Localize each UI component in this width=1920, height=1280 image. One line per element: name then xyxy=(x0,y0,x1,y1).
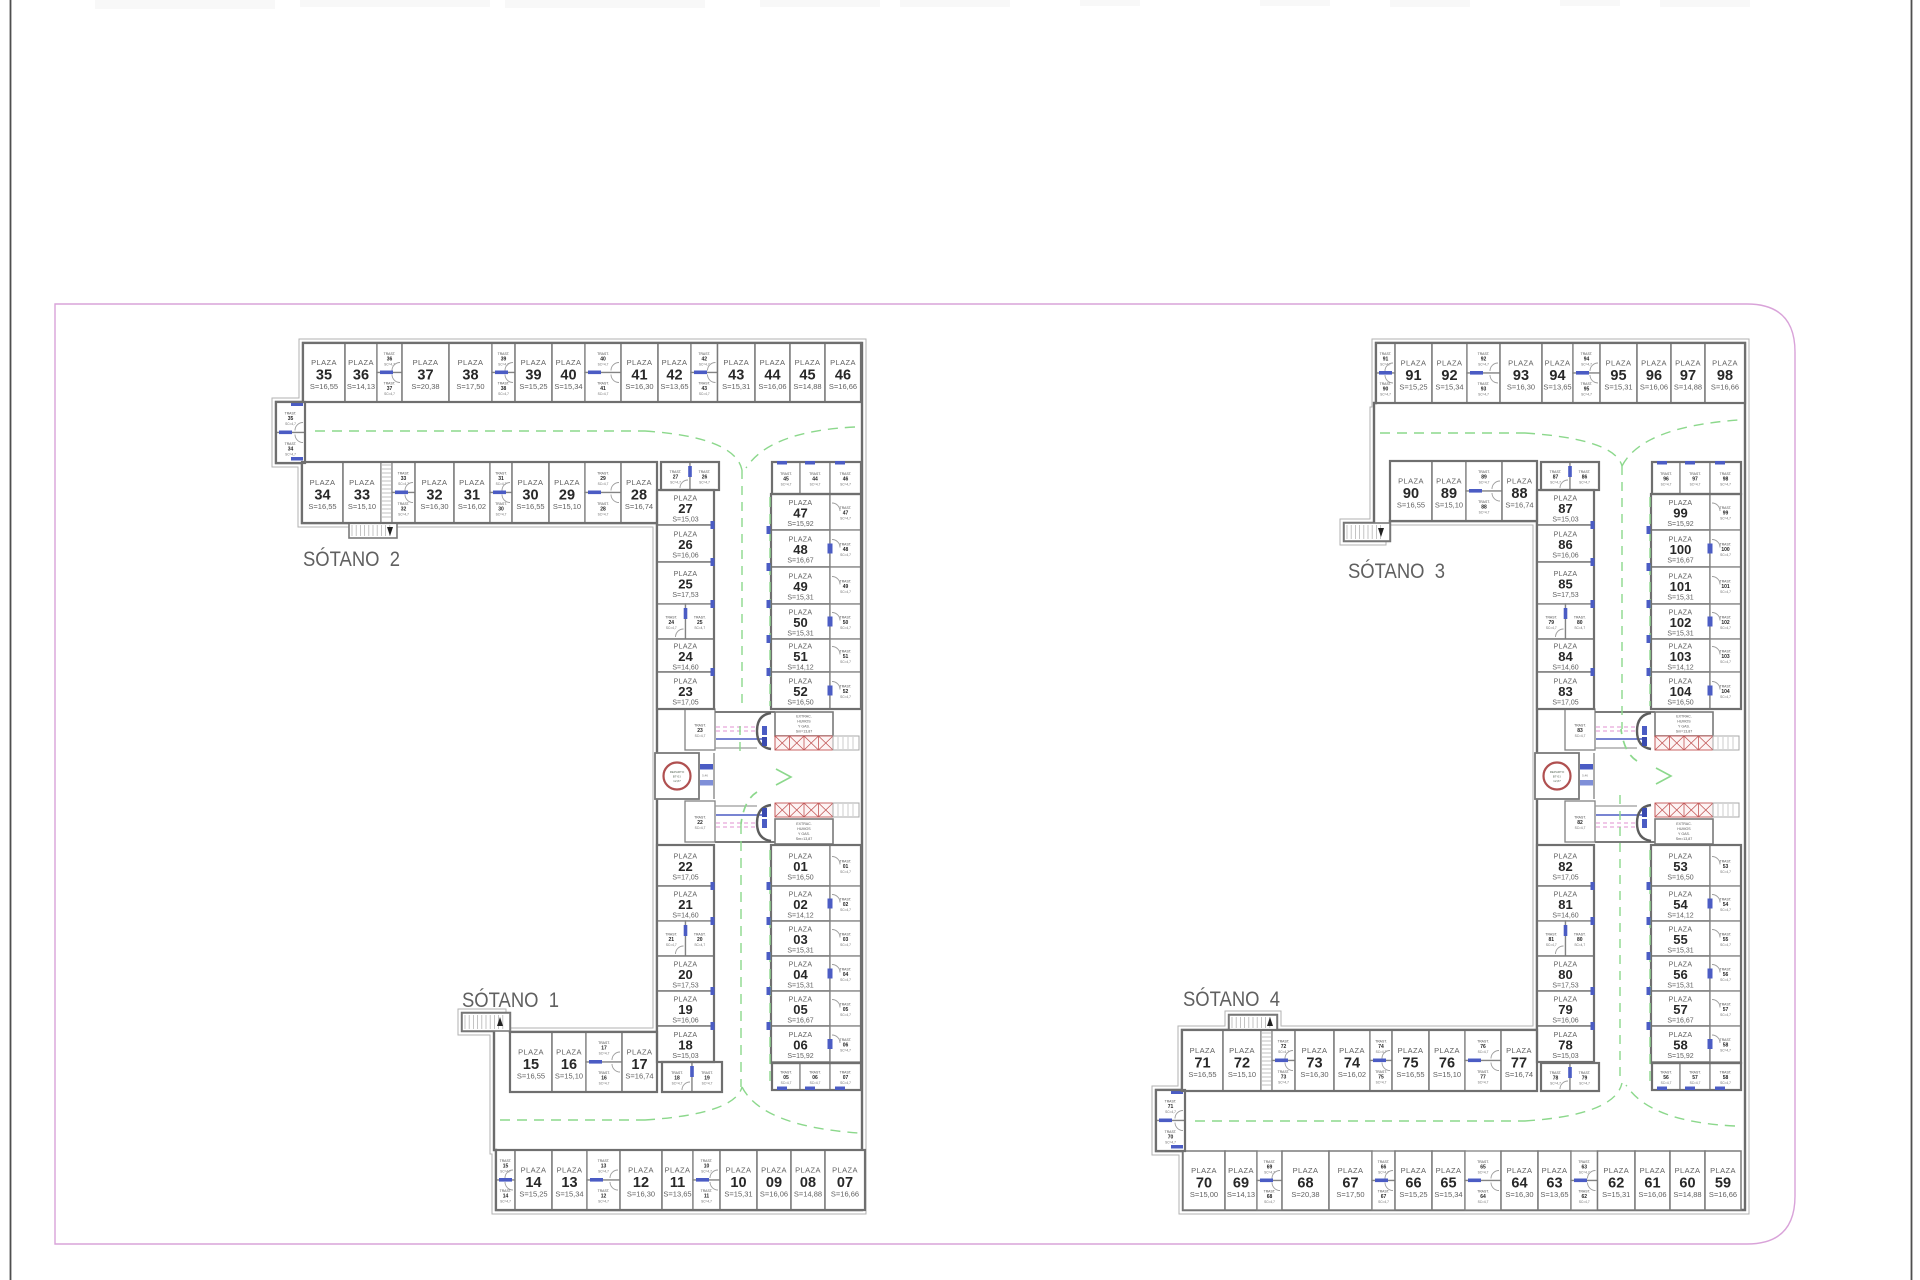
svg-text:SC=4,7: SC=4,7 xyxy=(496,512,507,516)
svg-text:S=13,65: S=13,65 xyxy=(1540,1190,1568,1199)
svg-text:S=13,65: S=13,65 xyxy=(663,1190,691,1199)
svg-text:TRAST.: TRAST. xyxy=(840,1071,852,1075)
svg-text:PLAZA: PLAZA xyxy=(1401,1166,1427,1175)
svg-text:PLAZA: PLAZA xyxy=(413,358,439,367)
svg-text:SC=4,7: SC=4,7 xyxy=(1380,363,1391,367)
svg-text:TRAST.: TRAST. xyxy=(1264,1189,1276,1193)
svg-text:TRAST.: TRAST. xyxy=(1660,472,1672,476)
svg-text:S=16,74: S=16,74 xyxy=(1505,1070,1533,1079)
svg-text:TRAST.: TRAST. xyxy=(597,471,609,475)
svg-text:PLAZA: PLAZA xyxy=(311,358,337,367)
svg-text:PLAZA: PLAZA xyxy=(348,358,374,367)
svg-text:S=14,88: S=14,88 xyxy=(1673,1190,1701,1199)
svg-text:REPARTO: REPARTO xyxy=(1550,770,1565,774)
svg-text:56: 56 xyxy=(1673,967,1687,982)
svg-text:S=15,31: S=15,31 xyxy=(724,1190,752,1199)
svg-text:TRAST.: TRAST. xyxy=(1165,1130,1177,1134)
svg-text:REPARTO: REPARTO xyxy=(670,770,685,774)
svg-text:S=16,66: S=16,66 xyxy=(829,382,857,391)
svg-text:TRAST.: TRAST. xyxy=(1720,968,1732,972)
svg-text:S=15,92: S=15,92 xyxy=(787,521,813,528)
svg-text:TRAST.: TRAST. xyxy=(1478,500,1490,504)
svg-text:SC=4,7: SC=4,7 xyxy=(1575,734,1586,738)
svg-text:PLAZA: PLAZA xyxy=(1339,1046,1365,1055)
svg-text:Sm=13,87: Sm=13,87 xyxy=(1676,730,1692,734)
svg-text:50: 50 xyxy=(793,615,807,630)
svg-text:S=16,67: S=16,67 xyxy=(787,1018,813,1025)
svg-text:54: 54 xyxy=(1673,897,1688,912)
svg-text:TRAST.: TRAST. xyxy=(598,1041,610,1045)
svg-text:SC=4,7: SC=4,7 xyxy=(1478,1080,1489,1084)
svg-text:TRAST.: TRAST. xyxy=(1689,472,1701,476)
svg-text:PLAZA: PLAZA xyxy=(557,1166,583,1175)
svg-text:SC=4,7: SC=4,7 xyxy=(840,943,851,947)
svg-text:TRAST.: TRAST. xyxy=(495,471,507,475)
svg-text:S=16,55: S=16,55 xyxy=(308,502,336,511)
svg-text:S=16,30: S=16,30 xyxy=(1300,1070,1328,1079)
svg-text:S=13,65: S=13,65 xyxy=(660,382,688,391)
svg-text:TRAST.: TRAST. xyxy=(780,472,792,476)
svg-text:SC=4,7: SC=4,7 xyxy=(840,553,851,557)
svg-text:SC=4,7: SC=4,7 xyxy=(398,512,409,516)
svg-text:SC=4,7: SC=4,7 xyxy=(810,1081,821,1085)
svg-text:55: 55 xyxy=(1673,932,1687,947)
svg-text:104: 104 xyxy=(1670,684,1692,699)
svg-text:TRAST.: TRAST. xyxy=(597,502,609,506)
svg-text:SC=4,7: SC=4,7 xyxy=(1479,511,1490,515)
svg-text:SC=4,7: SC=4,7 xyxy=(1720,943,1731,947)
svg-text:S=16,30: S=16,30 xyxy=(1505,1190,1533,1199)
svg-text:SC=4,7: SC=4,7 xyxy=(1478,363,1489,367)
svg-text:01: 01 xyxy=(793,859,807,874)
svg-text:TRAST.: TRAST. xyxy=(597,352,609,356)
svg-text:S=16,66: S=16,66 xyxy=(1709,1190,1737,1199)
svg-text:SC=4,7: SC=4,7 xyxy=(1579,1170,1590,1174)
svg-text:SC=4,7: SC=4,7 xyxy=(840,626,851,630)
svg-text:SC=4,7: SC=4,7 xyxy=(1720,483,1731,487)
svg-text:EXTRAC.: EXTRAC. xyxy=(796,715,812,719)
svg-text:S=16,06: S=16,06 xyxy=(672,553,698,560)
svg-text:TRAST.: TRAST. xyxy=(840,933,852,937)
svg-text:PLAZA: PLAZA xyxy=(1710,1166,1736,1175)
svg-text:5,46: 5,46 xyxy=(702,774,708,778)
svg-text:TRAST.: TRAST. xyxy=(1578,1189,1590,1193)
svg-text:SC=4,7: SC=4,7 xyxy=(1661,1081,1672,1085)
svg-text:S=15,34: S=15,34 xyxy=(555,1190,583,1199)
svg-text:S=14,60: S=14,60 xyxy=(672,665,698,672)
svg-text:TRAST.: TRAST. xyxy=(1477,1160,1489,1164)
svg-text:PLAZA: PLAZA xyxy=(556,358,582,367)
svg-text:HUMOS: HUMOS xyxy=(1677,827,1691,831)
svg-text:SC=4,7: SC=4,7 xyxy=(1478,1050,1489,1054)
svg-text:SC=4,7: SC=4,7 xyxy=(840,590,851,594)
svg-text:S=16,06: S=16,06 xyxy=(672,1018,698,1025)
svg-text:S=15,03: S=15,03 xyxy=(672,1053,698,1060)
svg-text:S=15,03: S=15,03 xyxy=(1552,1053,1578,1060)
svg-text:TRAST.: TRAST. xyxy=(1545,616,1557,620)
svg-text:S=14,60: S=14,60 xyxy=(1552,665,1578,672)
svg-text:SC=4,7: SC=4,7 xyxy=(498,392,509,396)
svg-text:S=16,55: S=16,55 xyxy=(1397,501,1425,510)
svg-text:SC=4,7: SC=4,7 xyxy=(840,660,851,664)
svg-text:S=14,13: S=14,13 xyxy=(347,382,375,391)
svg-text:SC=4,7: SC=4,7 xyxy=(1478,1200,1489,1204)
svg-text:TRAST.: TRAST. xyxy=(840,472,852,476)
svg-text:SC=4,7: SC=4,7 xyxy=(666,943,677,947)
svg-text:S=15,31: S=15,31 xyxy=(722,382,750,391)
svg-text:S=15,10: S=15,10 xyxy=(348,502,376,511)
svg-text:PLAZA: PLAZA xyxy=(627,1048,653,1057)
svg-text:TRAST.: TRAST. xyxy=(495,502,507,506)
svg-text:S=15,31: S=15,31 xyxy=(1604,383,1632,392)
svg-text:PLAZA: PLAZA xyxy=(1434,1046,1460,1055)
svg-text:SC=4,7: SC=4,7 xyxy=(840,517,851,521)
svg-text:84: 84 xyxy=(1558,649,1573,664)
svg-text:SÓTANO 3: SÓTANO 3 xyxy=(1348,560,1445,583)
svg-text:80: 80 xyxy=(1558,967,1572,982)
svg-text:TRAST.: TRAST. xyxy=(1720,898,1732,902)
svg-text:S=15,31: S=15,31 xyxy=(1667,631,1693,638)
svg-text:PLAZA: PLAZA xyxy=(1229,1046,1255,1055)
svg-text:03: 03 xyxy=(793,932,807,947)
svg-text:SC=4,7: SC=4,7 xyxy=(1579,1082,1590,1086)
svg-text:S=15,10: S=15,10 xyxy=(553,502,581,511)
svg-text:PLAZA: PLAZA xyxy=(795,358,821,367)
svg-text:TRAST.: TRAST. xyxy=(840,580,852,584)
svg-text:PLAZA: PLAZA xyxy=(1542,1166,1568,1175)
svg-text:TRAST.: TRAST. xyxy=(1278,1039,1290,1043)
svg-text:24: 24 xyxy=(678,649,693,664)
svg-text:SC=4,7: SC=4,7 xyxy=(694,943,705,947)
svg-text:S=16,67: S=16,67 xyxy=(1667,558,1693,565)
svg-text:SC=4,7: SC=4,7 xyxy=(599,1052,610,1056)
svg-text:S=16,74: S=16,74 xyxy=(625,1072,653,1081)
svg-text:S=15,92: S=15,92 xyxy=(787,1053,813,1060)
svg-text:TRAST.: TRAST. xyxy=(1720,580,1732,584)
svg-text:S=16,02: S=16,02 xyxy=(1338,1070,1366,1079)
svg-text:PLAZA: PLAZA xyxy=(1603,1166,1629,1175)
svg-text:82: 82 xyxy=(1558,859,1572,874)
svg-text:26: 26 xyxy=(678,537,692,552)
svg-text:TRAST.: TRAST. xyxy=(701,1189,713,1193)
svg-text:S=15,03: S=15,03 xyxy=(1552,517,1578,524)
svg-text:SC=4,7: SC=4,7 xyxy=(384,392,395,396)
svg-text:S=15,31: S=15,31 xyxy=(787,983,813,990)
svg-text:SC=4,7: SC=4,7 xyxy=(840,870,851,874)
svg-text:PLAZA: PLAZA xyxy=(1293,1166,1319,1175)
svg-text:20: 20 xyxy=(678,967,692,982)
svg-text:S=14,12: S=14,12 xyxy=(787,913,813,920)
svg-text:SC=4,7: SC=4,7 xyxy=(1581,393,1592,397)
svg-text:TRAST.: TRAST. xyxy=(1550,1071,1562,1075)
svg-text:HUMOS: HUMOS xyxy=(797,827,811,831)
svg-text:TRAST.: TRAST. xyxy=(384,381,396,385)
svg-text:PLAZA: PLAZA xyxy=(1398,1046,1424,1055)
svg-text:SC=4,7: SC=4,7 xyxy=(810,483,821,487)
svg-text:SC=4,7: SC=4,7 xyxy=(670,481,681,485)
svg-text:S=16,74: S=16,74 xyxy=(1505,501,1533,510)
svg-text:SC=4,7: SC=4,7 xyxy=(1278,1080,1289,1084)
svg-text:S=20,38: S=20,38 xyxy=(411,382,439,391)
svg-text:PLAZA: PLAZA xyxy=(761,1166,787,1175)
svg-text:SC=4,7: SC=4,7 xyxy=(666,626,677,630)
svg-text:TRAST.: TRAST. xyxy=(498,381,510,385)
svg-text:S=16,06: S=16,06 xyxy=(758,382,786,391)
svg-text:SC=4,7: SC=4,7 xyxy=(598,362,609,366)
svg-text:TRAST.: TRAST. xyxy=(840,616,852,620)
svg-text:TRAST.: TRAST. xyxy=(1720,860,1732,864)
svg-text:S=15,03: S=15,03 xyxy=(672,517,698,524)
svg-text:S=16,50: S=16,50 xyxy=(787,700,813,707)
svg-text:TRAST.: TRAST. xyxy=(1278,1070,1290,1074)
svg-text:PLAZA: PLAZA xyxy=(310,478,336,487)
svg-text:TRAST.: TRAST. xyxy=(1720,616,1732,620)
svg-text:22: 22 xyxy=(678,859,692,874)
svg-text:TRAST.: TRAST. xyxy=(498,352,510,356)
svg-text:S=17,53: S=17,53 xyxy=(1552,592,1578,599)
svg-text:SC=4,7: SC=4,7 xyxy=(1478,1170,1489,1174)
svg-text:S=16,50: S=16,50 xyxy=(1667,875,1693,882)
svg-text:52: 52 xyxy=(793,684,807,699)
svg-text:SC=4,7: SC=4,7 xyxy=(500,1170,511,1174)
svg-text:TRAST.: TRAST. xyxy=(285,442,297,446)
svg-text:SC=4,7: SC=4,7 xyxy=(695,734,706,738)
svg-text:PLAZA: PLAZA xyxy=(830,358,856,367)
svg-text:PLAZA: PLAZA xyxy=(518,1048,544,1057)
svg-text:PLAZA: PLAZA xyxy=(1338,1166,1364,1175)
svg-text:TRAST.: TRAST. xyxy=(665,933,677,937)
svg-text:S=17,05: S=17,05 xyxy=(672,875,698,882)
svg-text:SC=4,7: SC=4,7 xyxy=(1690,483,1701,487)
svg-text:PLAZA: PLAZA xyxy=(1507,477,1533,486)
svg-text:SC=4,7: SC=4,7 xyxy=(699,392,710,396)
svg-text:TRAST.: TRAST. xyxy=(809,1071,821,1075)
svg-text:S=15,34: S=15,34 xyxy=(1435,383,1463,392)
svg-text:HUMOS: HUMOS xyxy=(797,720,811,724)
svg-text:5,46: 5,46 xyxy=(1582,774,1588,778)
svg-text:S=15,10: S=15,10 xyxy=(1435,501,1463,510)
svg-text:SC=4,7: SC=4,7 xyxy=(1579,481,1590,485)
svg-text:27: 27 xyxy=(678,501,692,516)
svg-text:SC=4,7: SC=4,7 xyxy=(1380,393,1391,397)
svg-text:S=15,25: S=15,25 xyxy=(1399,383,1427,392)
svg-text:TRAST.: TRAST. xyxy=(1380,352,1392,356)
svg-text:12,87: 12,87 xyxy=(1553,779,1561,783)
svg-text:TRAST.: TRAST. xyxy=(694,724,706,728)
svg-text:TRAST.: TRAST. xyxy=(1720,543,1732,547)
svg-text:SC=4,7: SC=4,7 xyxy=(1264,1200,1275,1204)
svg-text:SC=4,7: SC=4,7 xyxy=(599,1082,610,1086)
svg-text:TRAST.: TRAST. xyxy=(1720,506,1732,510)
svg-text:SC=4,7: SC=4,7 xyxy=(1550,481,1561,485)
svg-text:BT-E.I: BT-E.I xyxy=(673,775,682,779)
svg-text:SC=4,7: SC=4,7 xyxy=(598,1170,609,1174)
svg-text:SÓTANO 1: SÓTANO 1 xyxy=(462,989,559,1012)
svg-text:81: 81 xyxy=(1558,897,1572,912)
svg-text:TRAST.: TRAST. xyxy=(840,898,852,902)
svg-text:S=16,30: S=16,30 xyxy=(627,1190,655,1199)
svg-text:TRAST.: TRAST. xyxy=(598,1159,610,1163)
svg-text:SC=4,7: SC=4,7 xyxy=(1165,1110,1176,1114)
svg-text:SC=4,7: SC=4,7 xyxy=(701,1170,712,1174)
svg-text:S=16,06: S=16,06 xyxy=(1552,1018,1578,1025)
svg-text:SC=4,7: SC=4,7 xyxy=(781,1081,792,1085)
svg-text:TRAST.: TRAST. xyxy=(1165,1099,1177,1103)
svg-text:SC=4,7: SC=4,7 xyxy=(840,483,851,487)
svg-text:S=15,31: S=15,31 xyxy=(1602,1190,1630,1199)
svg-text:SÓTANO 4: SÓTANO 4 xyxy=(1183,988,1280,1011)
svg-text:19: 19 xyxy=(678,1002,692,1017)
svg-text:TRAST.: TRAST. xyxy=(1574,724,1586,728)
svg-text:PLAZA: PLAZA xyxy=(422,478,448,487)
svg-text:TRAST.: TRAST. xyxy=(1375,1070,1387,1074)
svg-text:TRAST.: TRAST. xyxy=(1720,1038,1732,1042)
svg-text:04: 04 xyxy=(793,967,808,982)
svg-text:TRAST.: TRAST. xyxy=(1720,685,1732,689)
svg-text:PLAZA: PLAZA xyxy=(1508,359,1534,368)
svg-text:SC=4,7: SC=4,7 xyxy=(1720,695,1731,699)
svg-text:PLAZA: PLAZA xyxy=(459,478,485,487)
svg-text:S=15,10: S=15,10 xyxy=(1228,1070,1256,1079)
svg-text:S=17,05: S=17,05 xyxy=(672,700,698,707)
svg-text:EXTRAC.: EXTRAC. xyxy=(1676,822,1692,826)
svg-text:SC=4,7: SC=4,7 xyxy=(1720,908,1731,912)
svg-text:TRAST.: TRAST. xyxy=(1545,933,1557,937)
svg-text:PLAZA: PLAZA xyxy=(1712,359,1738,368)
svg-text:S=14,12: S=14,12 xyxy=(1667,665,1693,672)
svg-text:PLAZA: PLAZA xyxy=(1228,1166,1254,1175)
svg-text:TRAST.: TRAST. xyxy=(694,816,706,820)
svg-text:S=16,30: S=16,30 xyxy=(1507,383,1535,392)
svg-text:SC=4,7: SC=4,7 xyxy=(1575,826,1586,830)
svg-text:87: 87 xyxy=(1558,501,1572,516)
svg-text:SC=4,7: SC=4,7 xyxy=(695,826,706,830)
svg-text:S=15,25: S=15,25 xyxy=(519,382,547,391)
svg-text:51: 51 xyxy=(793,649,807,664)
svg-text:TRAST.: TRAST. xyxy=(840,506,852,510)
svg-text:Y GAS.: Y GAS. xyxy=(798,725,810,729)
svg-text:TRAST.: TRAST. xyxy=(1581,382,1593,386)
svg-text:SC=4,7: SC=4,7 xyxy=(1720,1013,1731,1017)
svg-text:S=16,06: S=16,06 xyxy=(1638,1190,1666,1199)
svg-text:TRAST.: TRAST. xyxy=(840,1003,852,1007)
svg-text:SC=4,7: SC=4,7 xyxy=(1720,1049,1731,1053)
svg-text:S=15,25: S=15,25 xyxy=(1399,1190,1427,1199)
svg-text:SC=4,7: SC=4,7 xyxy=(840,1013,851,1017)
svg-text:SC=4,7: SC=4,7 xyxy=(1546,626,1557,630)
svg-text:S=16,67: S=16,67 xyxy=(787,558,813,565)
svg-text:85: 85 xyxy=(1558,577,1572,592)
svg-text:S=16,66: S=16,66 xyxy=(1711,383,1739,392)
svg-text:TRAST.: TRAST. xyxy=(1720,650,1732,654)
svg-text:Sm=13,87: Sm=13,87 xyxy=(796,837,812,841)
svg-text:TRAST.: TRAST. xyxy=(809,472,821,476)
svg-text:PLAZA: PLAZA xyxy=(726,1166,752,1175)
svg-text:49: 49 xyxy=(793,579,807,594)
svg-text:TRAST.: TRAST. xyxy=(500,1159,512,1163)
svg-text:SC=4,7: SC=4,7 xyxy=(1720,517,1731,521)
svg-text:S=14,12: S=14,12 xyxy=(787,665,813,672)
svg-text:SC=4,7: SC=4,7 xyxy=(840,1049,851,1053)
svg-text:PLAZA: PLAZA xyxy=(349,478,375,487)
svg-text:S=16,55: S=16,55 xyxy=(516,502,544,511)
svg-text:TRAST.: TRAST. xyxy=(1477,1070,1489,1074)
svg-text:S=15,92: S=15,92 xyxy=(1667,1053,1693,1060)
svg-text:TRAST.: TRAST. xyxy=(1579,470,1591,474)
svg-text:TRAST.: TRAST. xyxy=(1264,1160,1276,1164)
svg-text:Y GAS.: Y GAS. xyxy=(1678,725,1690,729)
svg-text:S=16,50: S=16,50 xyxy=(1667,700,1693,707)
svg-text:PLAZA: PLAZA xyxy=(662,358,688,367)
svg-text:S=16,74: S=16,74 xyxy=(625,502,653,511)
svg-text:TRAST.: TRAST. xyxy=(840,543,852,547)
svg-text:EXTRAC.: EXTRAC. xyxy=(796,822,812,826)
svg-text:S=15,10: S=15,10 xyxy=(1433,1070,1461,1079)
svg-text:PLAZA: PLAZA xyxy=(554,478,580,487)
svg-text:SC=4,7: SC=4,7 xyxy=(1546,943,1557,947)
svg-text:Sm=13,87: Sm=13,87 xyxy=(1676,837,1692,841)
svg-text:S=14,88: S=14,88 xyxy=(1674,383,1702,392)
svg-text:S=20,38: S=20,38 xyxy=(1291,1190,1319,1199)
svg-text:TRAST.: TRAST. xyxy=(1660,1071,1672,1075)
svg-text:PLAZA: PLAZA xyxy=(1401,359,1427,368)
svg-text:S=16,06: S=16,06 xyxy=(1640,383,1668,392)
svg-text:S=17,50: S=17,50 xyxy=(1336,1190,1364,1199)
svg-text:TRAST.: TRAST. xyxy=(1378,1189,1390,1193)
svg-text:SC=4,7: SC=4,7 xyxy=(840,978,851,982)
svg-text:99: 99 xyxy=(1673,506,1687,521)
svg-text:PLAZA: PLAZA xyxy=(665,1166,691,1175)
svg-text:S=14,60: S=14,60 xyxy=(672,913,698,920)
svg-text:PLAZA: PLAZA xyxy=(1545,359,1571,368)
svg-text:TRAST.: TRAST. xyxy=(1477,1039,1489,1043)
svg-text:PLAZA: PLAZA xyxy=(521,1166,547,1175)
svg-text:PLAZA: PLAZA xyxy=(627,358,653,367)
svg-text:S=15,31: S=15,31 xyxy=(787,631,813,638)
svg-text:S=15,25: S=15,25 xyxy=(519,1190,547,1199)
svg-text:Sm=13,87: Sm=13,87 xyxy=(796,730,812,734)
svg-text:SC=4,7: SC=4,7 xyxy=(1479,481,1490,485)
svg-text:TRAST.: TRAST. xyxy=(671,1071,683,1075)
svg-text:SC=4,7: SC=4,7 xyxy=(285,452,296,456)
svg-text:TRAST.: TRAST. xyxy=(1378,1160,1390,1164)
svg-text:S=14,13: S=14,13 xyxy=(1227,1190,1255,1199)
svg-text:TRAST.: TRAST. xyxy=(1574,616,1586,620)
svg-text:05: 05 xyxy=(793,1002,807,1017)
svg-text:PLAZA: PLAZA xyxy=(1675,1166,1701,1175)
svg-text:S=17,53: S=17,53 xyxy=(672,592,698,599)
svg-text:TRAST.: TRAST. xyxy=(1574,816,1586,820)
svg-text:TRAST.: TRAST. xyxy=(1689,1071,1701,1075)
svg-text:PLAZA: PLAZA xyxy=(1641,359,1667,368)
svg-text:S=15,31: S=15,31 xyxy=(1667,948,1693,955)
svg-text:83: 83 xyxy=(1558,684,1572,699)
svg-text:TRAST.: TRAST. xyxy=(701,1159,713,1163)
svg-text:TRAST.: TRAST. xyxy=(398,502,410,506)
svg-text:PLAZA: PLAZA xyxy=(1507,1166,1533,1175)
svg-text:S=15,34: S=15,34 xyxy=(554,382,582,391)
svg-text:SC=4,7: SC=4,7 xyxy=(1165,1140,1176,1144)
svg-text:S=13,65: S=13,65 xyxy=(1543,383,1571,392)
svg-text:25: 25 xyxy=(678,577,692,592)
svg-text:Y GAS.: Y GAS. xyxy=(798,832,810,836)
svg-text:SC=4,7: SC=4,7 xyxy=(701,1200,712,1204)
svg-text:SC=4,7: SC=4,7 xyxy=(598,1200,609,1204)
svg-text:TRAST.: TRAST. xyxy=(1477,1189,1489,1193)
svg-text:S=16,66: S=16,66 xyxy=(831,1190,859,1199)
svg-text:SC=4,7: SC=4,7 xyxy=(1550,1082,1561,1086)
svg-text:S=16,55: S=16,55 xyxy=(1396,1070,1424,1079)
